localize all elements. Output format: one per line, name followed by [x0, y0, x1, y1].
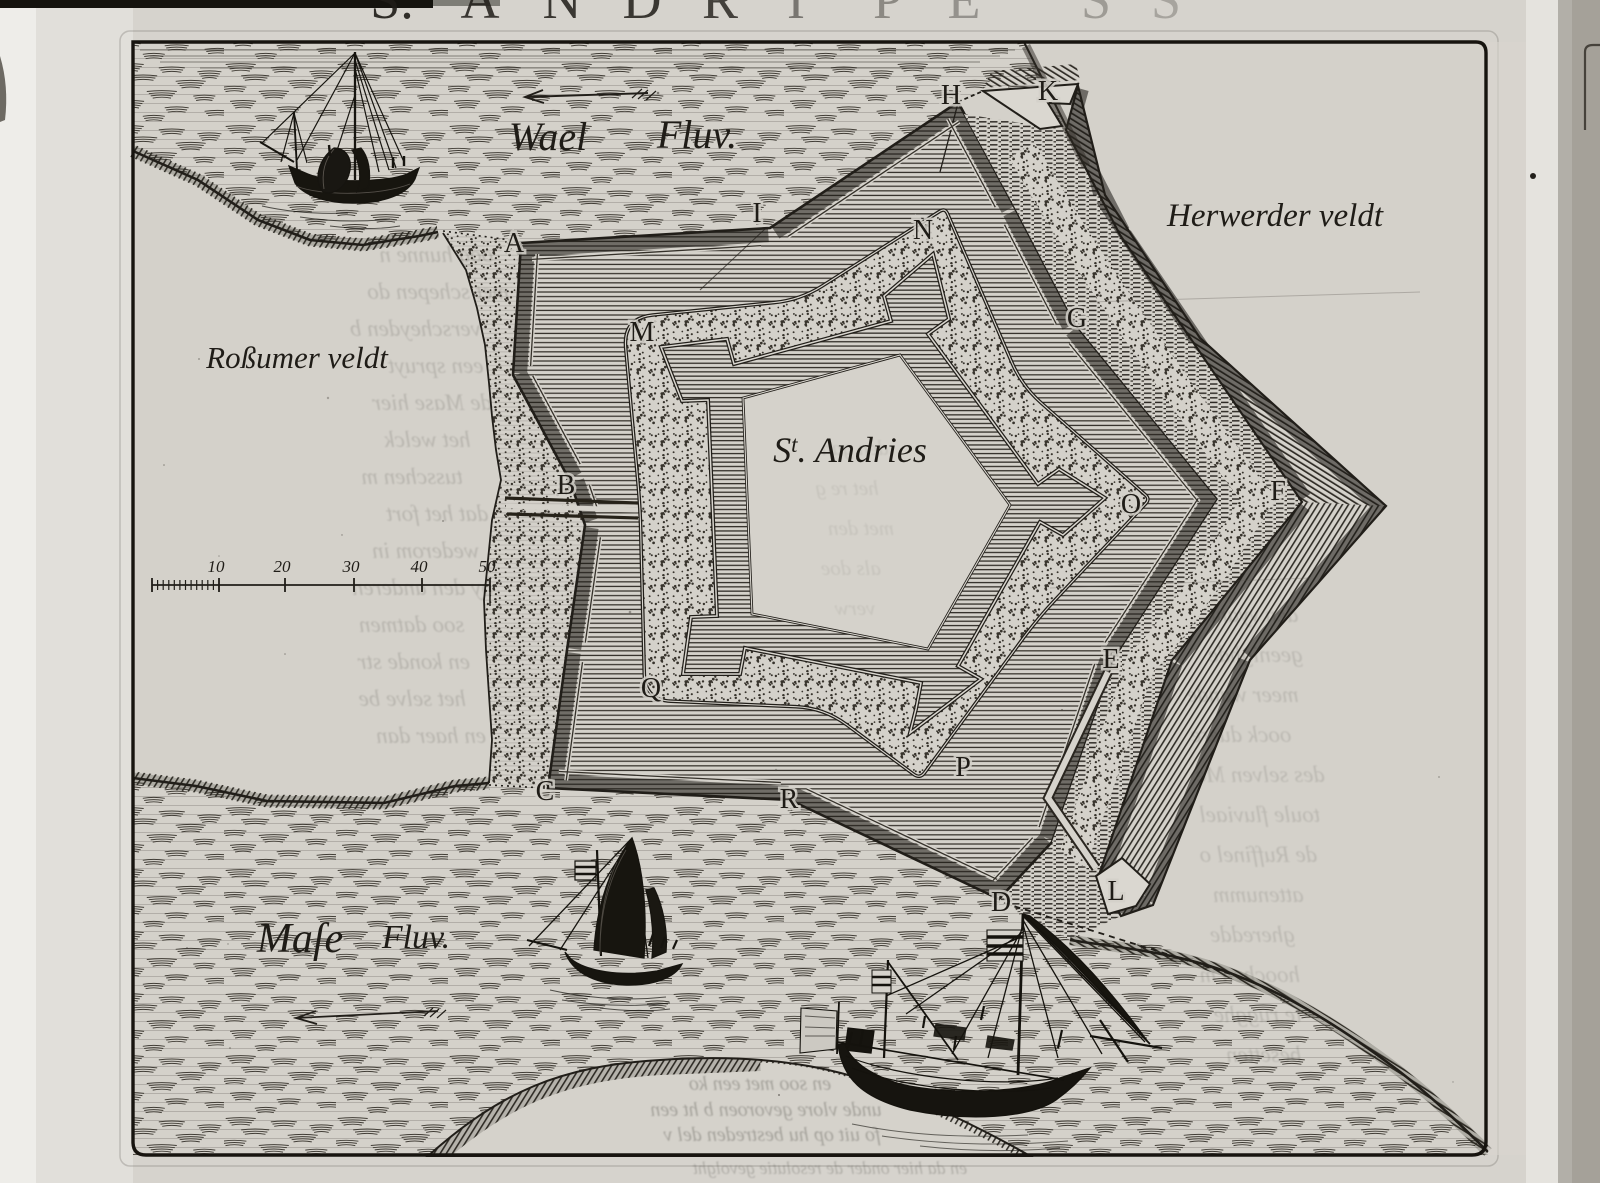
svg-text:K: K: [1038, 76, 1058, 107]
svg-text:D: D: [623, 0, 662, 30]
svg-text:een spruyt: een spruyt: [388, 353, 484, 378]
svg-text:E: E: [948, 0, 981, 30]
svg-text:met den: met den: [828, 516, 894, 540]
svg-text:Roßumer veldt: Roßumer veldt: [205, 340, 389, 375]
svg-text:30: 30: [342, 557, 361, 576]
svg-text:M: M: [630, 317, 655, 348]
svg-text:P: P: [873, 0, 903, 30]
svg-text:A: A: [461, 0, 500, 30]
svg-text:tusschen m: tusschen m: [361, 464, 463, 489]
svg-text:en da hier onder de resolutie: en da hier onder de resolutie gevolght: [692, 1158, 967, 1178]
svg-text:O: O: [1121, 489, 1141, 520]
svg-text:A: A: [504, 228, 525, 259]
svg-text:S: S: [1151, 0, 1181, 30]
svg-text:als doe: als doe: [821, 556, 881, 580]
svg-text:en haer dan: en haer dan: [376, 723, 486, 748]
svg-text:de Mase hier: de Mase hier: [371, 390, 492, 415]
svg-text:geenighde: geenighde: [1208, 642, 1303, 667]
svg-text:H: H: [941, 80, 961, 111]
svg-text:te rugghe: te rugghe: [1214, 1002, 1302, 1027]
svg-text:D: D: [991, 887, 1011, 918]
svg-text:de Ruffinel o: de Ruffinel o: [1200, 842, 1318, 867]
svg-text:S: S: [1081, 0, 1111, 30]
svg-text:Fluv.: Fluv.: [656, 112, 737, 157]
svg-text:Maſe: Maſe: [256, 916, 343, 962]
svg-text:unde vlore gevoroen b ht een: unde vlore gevoroen b ht een: [650, 1099, 881, 1121]
svg-text:het welck: het welck: [384, 427, 471, 452]
svg-text:het selve be: het selve be: [359, 686, 466, 711]
svg-text:40: 40: [411, 557, 429, 576]
svg-text:L: L: [1107, 876, 1124, 907]
svg-text:I: I: [787, 0, 805, 30]
svg-text:hoochen m: hoochen m: [1200, 962, 1300, 987]
svg-text:B: B: [557, 470, 576, 501]
svg-text:oock duere: oock duere: [1191, 722, 1292, 747]
svg-text:R: R: [702, 0, 738, 30]
svg-text:S.: S.: [370, 0, 414, 30]
svg-text:G: G: [1067, 303, 1087, 334]
svg-text:en soo met een ko: en soo met een ko: [689, 1073, 831, 1095]
svg-text:Herwerder veldt: Herwerder veldt: [1166, 198, 1384, 234]
svg-text:en konde str: en konde str: [357, 649, 470, 674]
svg-text:verscheyden b: verscheyden b: [350, 316, 481, 341]
svg-text:fo uit op hu bestreden del v: fo uit op hu bestreden del v: [663, 1124, 880, 1146]
svg-text:I: I: [752, 198, 761, 229]
svg-text:Q: Q: [641, 673, 661, 704]
svg-text:R: R: [780, 784, 799, 815]
svg-text:20: 20: [274, 557, 292, 576]
svg-text:den vyant: den vyant: [1209, 602, 1298, 627]
svg-text:10: 10: [208, 557, 226, 576]
svg-text:toule fluviael: toule fluviael: [1199, 802, 1320, 827]
svg-text:C: C: [536, 776, 555, 807]
svg-text:attenumm: attenumm: [1213, 882, 1304, 907]
svg-text:N: N: [913, 215, 933, 246]
svg-text:soo datmen: soo datmen: [359, 612, 464, 637]
svg-text:Fluv.: Fluv.: [381, 919, 450, 956]
svg-text:N: N: [543, 0, 582, 30]
svg-text:met schepen do: met schepen do: [367, 279, 509, 304]
svg-text:E: E: [1102, 644, 1119, 675]
svg-text:50: 50: [479, 557, 497, 576]
svg-text:verw: verw: [835, 596, 876, 620]
svg-text:besetten: besetten: [1226, 1042, 1301, 1067]
svg-text:P: P: [955, 752, 971, 783]
svg-text:F: F: [1270, 476, 1286, 507]
svg-text:gheredde: gheredde: [1210, 922, 1295, 947]
svg-text:des selven Me: des selven Me: [1196, 762, 1325, 787]
svg-text:Wael: Wael: [509, 114, 588, 159]
svg-text:meer wande: meer wande: [1187, 682, 1299, 707]
svg-text:oog hunne n: oog hunne n: [379, 242, 493, 267]
svg-text:het re g: het re g: [815, 476, 878, 500]
svg-text:dat het fort: dat het fort: [386, 501, 489, 526]
